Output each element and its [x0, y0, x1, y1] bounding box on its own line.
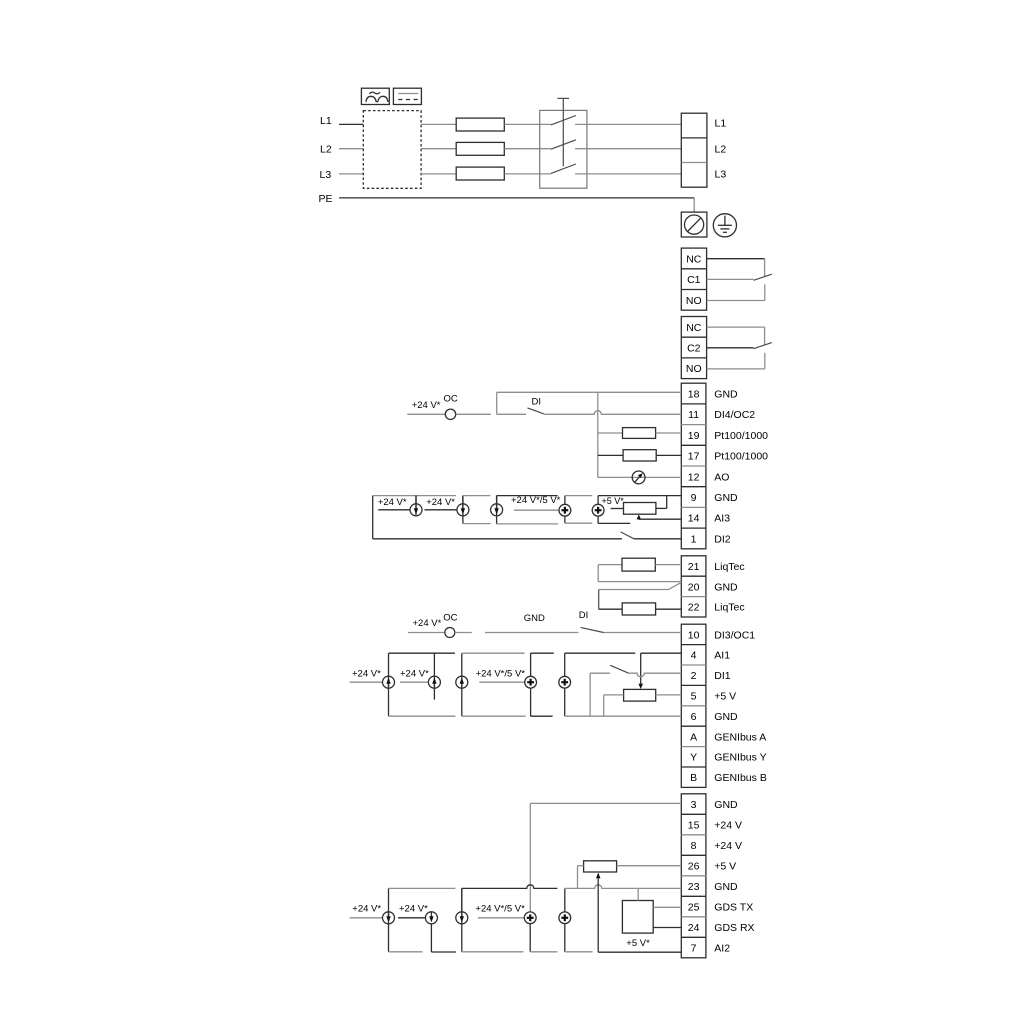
- svg-text:AO: AO: [714, 471, 729, 483]
- svg-text:C2: C2: [687, 342, 701, 354]
- svg-text:L3: L3: [320, 169, 332, 181]
- svg-text:+24 V*: +24 V*: [352, 668, 381, 679]
- svg-text:L2: L2: [320, 144, 332, 156]
- svg-text:12: 12: [688, 471, 700, 483]
- svg-text:15: 15: [688, 819, 700, 831]
- svg-text:+24 V*: +24 V*: [352, 904, 381, 915]
- svg-text:NC: NC: [686, 322, 702, 334]
- svg-text:NC: NC: [686, 253, 702, 265]
- svg-text:NO: NO: [686, 363, 702, 375]
- svg-text:9: 9: [691, 492, 697, 504]
- svg-text:17: 17: [688, 451, 700, 463]
- svg-text:DI4/OC2: DI4/OC2: [714, 409, 755, 421]
- svg-text:AI1: AI1: [714, 650, 730, 662]
- svg-text:GND: GND: [714, 799, 738, 811]
- svg-text:8: 8: [691, 840, 697, 852]
- svg-text:19: 19: [688, 430, 700, 442]
- svg-text:A: A: [690, 731, 697, 743]
- svg-text:+24 V*: +24 V*: [399, 904, 428, 915]
- svg-text:GND: GND: [714, 388, 738, 400]
- svg-text:GND: GND: [714, 581, 738, 593]
- svg-text:+5 V*: +5 V*: [626, 938, 650, 949]
- svg-text:GDS RX: GDS RX: [714, 922, 754, 934]
- svg-text:DI2: DI2: [714, 533, 731, 545]
- svg-text:6: 6: [691, 711, 697, 723]
- svg-text:DI: DI: [532, 397, 542, 408]
- svg-text:4: 4: [691, 650, 697, 662]
- svg-text:GENIbus A: GENIbus A: [714, 731, 766, 743]
- svg-text:GND: GND: [714, 881, 738, 893]
- svg-text:+24 V*: +24 V*: [400, 668, 429, 679]
- svg-text:Y: Y: [690, 752, 697, 764]
- svg-text:Pt100/1000: Pt100/1000: [714, 430, 768, 442]
- svg-text:24: 24: [688, 922, 700, 934]
- svg-text:+24 V*/5 V*: +24 V*/5 V*: [476, 668, 526, 679]
- svg-text:10: 10: [688, 629, 700, 641]
- svg-text:25: 25: [688, 901, 700, 913]
- svg-text:LiqTec: LiqTec: [714, 602, 744, 614]
- svg-text:1: 1: [691, 533, 697, 545]
- svg-text:2: 2: [691, 670, 697, 682]
- svg-text:PE: PE: [319, 193, 333, 205]
- svg-text:Pt100/1000: Pt100/1000: [714, 451, 768, 463]
- svg-text:+24 V*: +24 V*: [378, 497, 407, 508]
- svg-text:GENIbus Y: GENIbus Y: [714, 752, 766, 764]
- svg-text:DI1: DI1: [714, 670, 731, 682]
- svg-text:+24 V: +24 V: [714, 840, 742, 852]
- svg-text:L2: L2: [715, 143, 727, 155]
- svg-text:3: 3: [691, 799, 697, 811]
- svg-text:L1: L1: [715, 117, 727, 129]
- svg-text:+5 V*: +5 V*: [602, 496, 625, 506]
- svg-text:AI2: AI2: [714, 942, 730, 954]
- svg-text:GENIbus B: GENIbus B: [714, 772, 767, 784]
- svg-text:GND: GND: [714, 711, 738, 723]
- svg-text:+24 V*: +24 V*: [413, 618, 442, 629]
- svg-text:+24 V*: +24 V*: [426, 497, 455, 508]
- svg-text:+24 V*/5 V*: +24 V*/5 V*: [511, 495, 561, 506]
- svg-text:+24 V: +24 V: [714, 819, 742, 831]
- svg-text:LiqTec: LiqTec: [714, 561, 744, 573]
- svg-text:L3: L3: [715, 168, 727, 180]
- svg-text:26: 26: [688, 860, 700, 872]
- svg-text:23: 23: [688, 881, 700, 893]
- svg-text:18: 18: [688, 388, 700, 400]
- svg-text:GDS TX: GDS TX: [714, 901, 753, 913]
- svg-text:11: 11: [688, 409, 699, 421]
- svg-text:GND: GND: [714, 492, 738, 504]
- svg-text:OC: OC: [444, 394, 458, 405]
- svg-text:B: B: [690, 772, 697, 784]
- svg-text:20: 20: [688, 581, 700, 593]
- svg-text:22: 22: [688, 602, 700, 614]
- svg-text:AI3: AI3: [714, 513, 730, 525]
- svg-text:14: 14: [688, 513, 700, 525]
- svg-text:7: 7: [691, 942, 697, 954]
- svg-text:DI: DI: [579, 610, 589, 621]
- svg-text:21: 21: [688, 561, 700, 573]
- svg-text:+5 V: +5 V: [714, 860, 736, 872]
- svg-text:5: 5: [691, 691, 697, 703]
- svg-text:NO: NO: [686, 295, 702, 307]
- svg-text:+24 V*: +24 V*: [412, 400, 441, 411]
- svg-text:C1: C1: [687, 274, 701, 286]
- svg-text:+5 V: +5 V: [714, 691, 736, 703]
- svg-text:OC: OC: [443, 612, 457, 623]
- svg-text:L1: L1: [320, 115, 332, 127]
- svg-text:+24 V*/5 V*: +24 V*/5 V*: [475, 904, 525, 915]
- svg-text:DI3/OC1: DI3/OC1: [714, 629, 755, 641]
- svg-text:GND: GND: [524, 613, 545, 624]
